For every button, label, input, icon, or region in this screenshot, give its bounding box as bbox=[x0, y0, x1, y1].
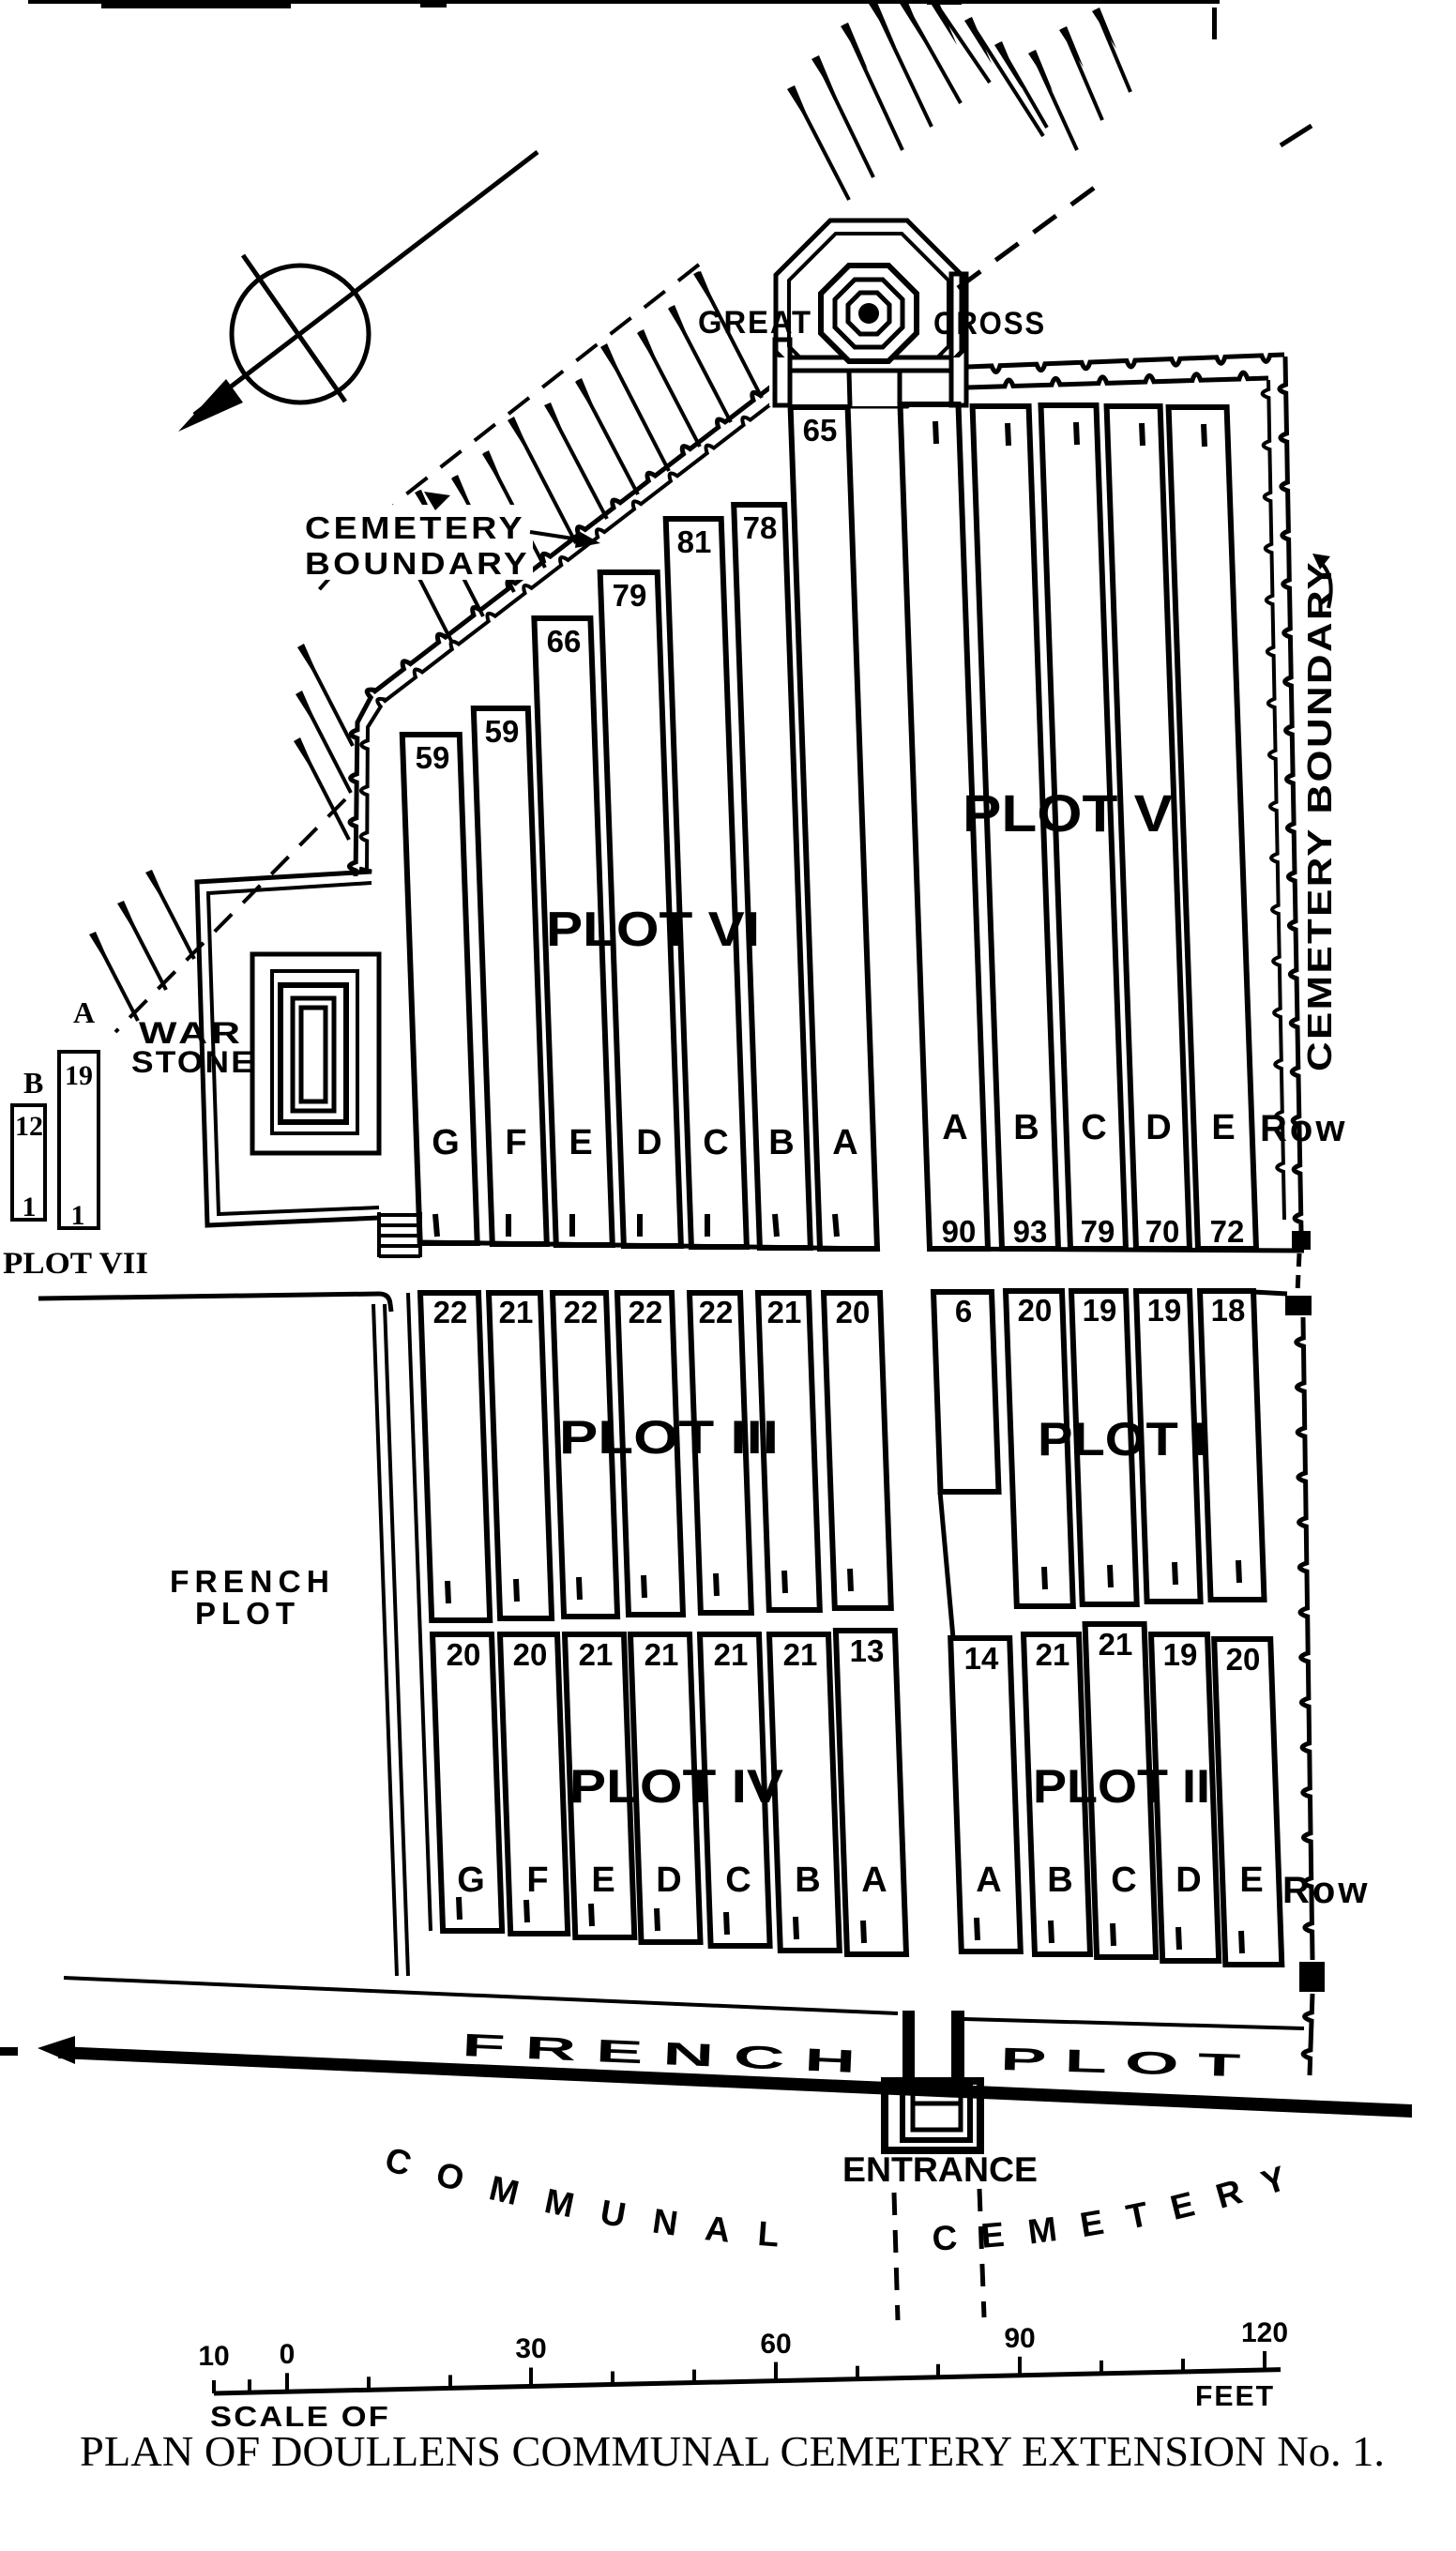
svg-text:21: 21 bbox=[767, 1295, 802, 1329]
svg-text:18: 18 bbox=[1211, 1293, 1246, 1328]
svg-text:A: A bbox=[832, 1123, 857, 1162]
svg-text:21: 21 bbox=[783, 1637, 818, 1672]
svg-text:C: C bbox=[703, 1123, 728, 1162]
svg-text:B: B bbox=[23, 1066, 43, 1100]
svg-text:21: 21 bbox=[1099, 1627, 1133, 1662]
svg-text:C: C bbox=[1081, 1108, 1106, 1147]
svg-text:PLOT: PLOT bbox=[195, 1596, 300, 1631]
svg-text:66: 66 bbox=[547, 624, 582, 659]
svg-text:1: 1 bbox=[71, 1200, 85, 1231]
svg-text:79: 79 bbox=[613, 578, 647, 613]
svg-text:E: E bbox=[569, 1123, 592, 1162]
svg-text:20: 20 bbox=[513, 1637, 548, 1672]
svg-text:E: E bbox=[1211, 1108, 1235, 1147]
svg-text:20: 20 bbox=[1226, 1642, 1261, 1677]
svg-text:E: E bbox=[1239, 1860, 1263, 1900]
svg-text:FRENCH: FRENCH bbox=[170, 1564, 335, 1599]
svg-text:90: 90 bbox=[942, 1214, 977, 1249]
svg-text:STONE: STONE bbox=[131, 1045, 255, 1079]
svg-text:PLOT I: PLOT I bbox=[1038, 1413, 1207, 1465]
svg-text:19: 19 bbox=[1147, 1293, 1182, 1328]
svg-text:E: E bbox=[591, 1860, 614, 1900]
svg-text:G: G bbox=[457, 1860, 485, 1900]
svg-text:CEMETERY BOUNDARY: CEMETERY BOUNDARY bbox=[1300, 560, 1339, 1071]
svg-text:13: 13 bbox=[850, 1633, 885, 1668]
svg-text:D: D bbox=[1175, 1860, 1201, 1900]
svg-text:19: 19 bbox=[1163, 1637, 1198, 1672]
svg-text:21: 21 bbox=[499, 1295, 534, 1329]
svg-text:22: 22 bbox=[433, 1295, 468, 1329]
svg-text:ENTRANCE: ENTRANCE bbox=[842, 2150, 1038, 2189]
svg-text:93: 93 bbox=[1013, 1214, 1048, 1249]
svg-text:PLAN OF DOULLENS COMMUNAL CEME: PLAN OF DOULLENS COMMUNAL CEMETERY EXTEN… bbox=[80, 2428, 1385, 2475]
svg-text:21: 21 bbox=[579, 1637, 614, 1672]
svg-text:GREAT: GREAT bbox=[698, 305, 812, 341]
svg-text:PLOT VII: PLOT VII bbox=[3, 1247, 148, 1281]
svg-text:22: 22 bbox=[699, 1295, 734, 1329]
svg-text:G: G bbox=[432, 1123, 460, 1162]
svg-text:20: 20 bbox=[447, 1637, 481, 1672]
svg-text:90: 90 bbox=[1004, 2323, 1035, 2354]
svg-text:C: C bbox=[1111, 1860, 1136, 1900]
svg-text:B: B bbox=[768, 1123, 794, 1162]
svg-text:PLOT VI: PLOT VI bbox=[546, 903, 760, 957]
svg-text:A: A bbox=[976, 1860, 1001, 1900]
svg-text:60: 60 bbox=[760, 2329, 791, 2360]
svg-text:22: 22 bbox=[629, 1295, 663, 1329]
svg-text:20: 20 bbox=[1018, 1293, 1053, 1328]
svg-text:A: A bbox=[73, 995, 95, 1029]
svg-text:F: F bbox=[505, 1123, 526, 1162]
svg-text:81: 81 bbox=[677, 524, 712, 559]
svg-text:P L O T: P L O T bbox=[1000, 2042, 1241, 2084]
svg-text:CROSS: CROSS bbox=[933, 306, 1046, 342]
svg-text:59: 59 bbox=[485, 714, 520, 749]
svg-text:PLOT IV: PLOT IV bbox=[569, 1760, 784, 1813]
svg-text:BOUNDARY: BOUNDARY bbox=[305, 546, 530, 581]
svg-text:B: B bbox=[1047, 1860, 1072, 1900]
svg-text:A: A bbox=[861, 1860, 887, 1900]
svg-text:PLOT II: PLOT II bbox=[1033, 1760, 1210, 1813]
svg-text:D: D bbox=[636, 1123, 661, 1162]
svg-text:A: A bbox=[942, 1108, 967, 1147]
svg-text:Row: Row bbox=[1282, 1870, 1370, 1911]
svg-text:14: 14 bbox=[964, 1641, 999, 1676]
svg-text:B: B bbox=[1013, 1108, 1039, 1147]
svg-text:120: 120 bbox=[1241, 2317, 1288, 2348]
svg-text:1: 1 bbox=[23, 1192, 37, 1222]
svg-text:D: D bbox=[1145, 1108, 1171, 1147]
svg-text:PLOT III: PLOT III bbox=[559, 1411, 779, 1464]
svg-text:30: 30 bbox=[515, 2333, 546, 2364]
svg-text:10: 10 bbox=[198, 2341, 229, 2372]
svg-text:79: 79 bbox=[1081, 1214, 1115, 1249]
svg-text:F: F bbox=[526, 1860, 548, 1900]
svg-text:C: C bbox=[725, 1860, 751, 1900]
svg-text:20: 20 bbox=[836, 1295, 871, 1329]
svg-text:21: 21 bbox=[714, 1637, 749, 1672]
svg-text:Row: Row bbox=[1260, 1108, 1347, 1149]
svg-text:22: 22 bbox=[564, 1295, 599, 1329]
svg-text:72: 72 bbox=[1210, 1214, 1245, 1249]
svg-text:12: 12 bbox=[15, 1111, 43, 1142]
svg-text:D: D bbox=[656, 1860, 681, 1900]
svg-text:65: 65 bbox=[803, 413, 838, 448]
svg-text:FEET: FEET bbox=[1195, 2379, 1275, 2412]
svg-text:78: 78 bbox=[743, 510, 778, 545]
svg-text:6: 6 bbox=[955, 1294, 972, 1329]
svg-text:B: B bbox=[795, 1860, 820, 1900]
svg-text:PLOT V: PLOT V bbox=[963, 783, 1173, 843]
svg-text:59: 59 bbox=[416, 740, 450, 775]
svg-text:CEMETERY: CEMETERY bbox=[305, 510, 525, 545]
svg-text:21: 21 bbox=[1036, 1637, 1070, 1672]
svg-text:19: 19 bbox=[65, 1060, 93, 1091]
svg-text:70: 70 bbox=[1145, 1214, 1180, 1249]
svg-text:19: 19 bbox=[1083, 1293, 1117, 1328]
svg-text:0: 0 bbox=[280, 2339, 296, 2370]
svg-text:21: 21 bbox=[645, 1637, 679, 1672]
